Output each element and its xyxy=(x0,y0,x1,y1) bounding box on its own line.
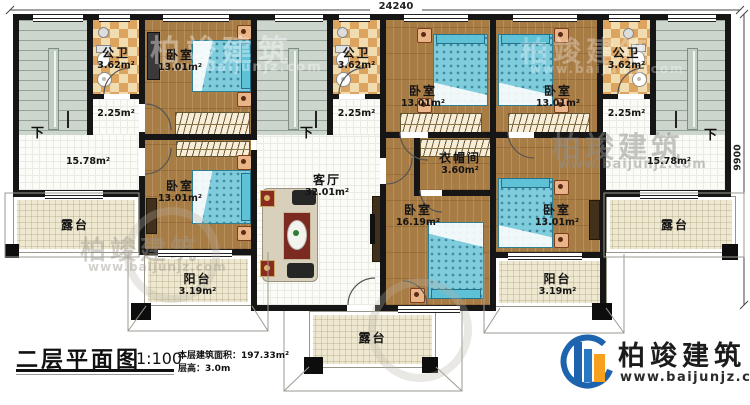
stair-direction-arrow xyxy=(675,111,677,128)
room-area: 3.19m² xyxy=(165,286,230,297)
nightstand xyxy=(237,92,252,107)
door-opening xyxy=(420,190,442,196)
side-table xyxy=(260,260,275,277)
room-area: 32.01m² xyxy=(294,187,360,198)
pillar xyxy=(131,303,151,320)
pillar xyxy=(5,244,19,258)
dimension-top: 24240 xyxy=(370,1,422,12)
room-name: 公卫 xyxy=(602,46,651,60)
room-label-hall-right: 2.25m² xyxy=(602,108,651,119)
shower-icon xyxy=(337,27,348,38)
stair-rail xyxy=(288,48,299,130)
wall xyxy=(139,134,257,140)
room-area: 13.01m² xyxy=(150,62,210,73)
plant xyxy=(293,230,299,236)
nightstand xyxy=(237,25,252,40)
room-label-bath-right: 公卫 3.62m² xyxy=(602,46,651,72)
room-name: 卧室 xyxy=(150,179,210,193)
door-opening xyxy=(618,94,644,99)
nightstand xyxy=(554,233,569,248)
room-name: 卧室 xyxy=(527,203,587,217)
room-name: 露台 xyxy=(340,331,405,345)
brand-logo-text: 柏竣建筑 xyxy=(618,334,746,373)
title-underline-thin xyxy=(16,374,174,375)
room-name: 公卫 xyxy=(92,46,140,60)
room-label-bed-mid-left: 卧室 13.01m² xyxy=(150,179,210,205)
door-opening xyxy=(400,132,428,138)
room-area: 16.19m² xyxy=(388,217,448,228)
tv xyxy=(370,214,375,244)
room-area: 13.01m² xyxy=(527,98,589,109)
room-area: 13.01m² xyxy=(392,98,454,109)
wardrobe xyxy=(508,113,590,134)
room-area: 15.78m² xyxy=(48,156,128,167)
room-name: 卧室 xyxy=(527,84,589,98)
sink xyxy=(632,72,647,87)
room-name: 衣帽间 xyxy=(428,151,492,165)
room-label-bed-mid-right: 卧室 13.01m² xyxy=(527,203,587,229)
wardrobe xyxy=(400,113,482,134)
room-name: 露台 xyxy=(40,218,110,232)
room-area: 3.62m² xyxy=(332,60,381,71)
stair-down-label: 下 xyxy=(704,124,717,143)
wall xyxy=(380,20,386,140)
nightstand xyxy=(237,226,252,241)
shower-icon xyxy=(623,28,634,39)
stair-rail xyxy=(48,48,59,130)
room-name: 露台 xyxy=(645,218,705,232)
stair-down-label: 下 xyxy=(31,122,44,141)
sink xyxy=(97,72,112,87)
window xyxy=(339,14,370,22)
tv-cabinet xyxy=(589,200,600,240)
room-label-terrace-bottom: 露台 xyxy=(340,331,405,345)
dimension-right: 9900 xyxy=(733,138,744,178)
room-label-balcony-right: 阳台 3.19m² xyxy=(525,272,590,298)
room-label-cloakroom: 衣帽间 3.60m² xyxy=(428,151,492,177)
room-label-hall-mid: 2.25m² xyxy=(332,108,381,119)
room-label-living: 客厅 32.01m² xyxy=(294,173,360,199)
door-opening xyxy=(347,305,375,311)
room-label-balcony-left: 阳台 3.19m² xyxy=(165,272,230,298)
room-name: 卧室 xyxy=(150,48,210,62)
door-opening xyxy=(139,148,145,176)
room-label-terrace-right: 露台 xyxy=(645,218,705,232)
pillar xyxy=(592,303,612,320)
window xyxy=(640,190,698,199)
window xyxy=(163,14,229,22)
room-area: 3.60m² xyxy=(428,165,492,176)
nightstand xyxy=(554,180,569,195)
window xyxy=(275,14,323,22)
wardrobe xyxy=(175,112,250,135)
room-label-open-left: 15.78m² xyxy=(48,156,128,167)
room-area: 2.25m² xyxy=(602,108,651,119)
room-label-terrace-left: 露台 xyxy=(40,218,110,232)
floor-area-label: 本层建筑面积：197.33m² xyxy=(178,348,289,361)
wall xyxy=(380,132,496,138)
sliding-door xyxy=(508,252,582,260)
wall xyxy=(600,132,606,308)
door-opening xyxy=(508,132,534,138)
room-area: 2.25m² xyxy=(92,108,140,119)
window xyxy=(45,190,103,199)
floor-height-label: 层高：3.0m xyxy=(178,361,230,374)
room-label-open-right: 15.78m² xyxy=(633,156,705,167)
room-label-bath-mid: 公卫 3.62m² xyxy=(332,46,381,72)
wall xyxy=(13,14,19,196)
room-label-bed-top-mid-left: 卧室 13.01m² xyxy=(392,84,454,110)
nightstand xyxy=(417,28,432,43)
pillar xyxy=(722,244,738,260)
room-label-bed-top-mid-right: 卧室 13.01m² xyxy=(527,84,589,110)
nightstand xyxy=(554,28,569,43)
bed xyxy=(428,222,484,299)
window xyxy=(99,14,130,22)
window xyxy=(668,14,716,22)
room-label-bed-top-left: 卧室 13.01m² xyxy=(150,48,210,74)
room-area: 13.01m² xyxy=(150,193,210,204)
side-table xyxy=(260,190,275,207)
nightstand xyxy=(410,288,425,303)
room-name: 客厅 xyxy=(294,173,360,187)
brand-logo-icon xyxy=(558,330,616,402)
door-opening xyxy=(104,94,130,99)
window xyxy=(33,14,83,22)
floor-plan-sheet: 24240 9900 公卫 3.62m² 2.25m² 卧室 13.01m² 1… xyxy=(0,0,750,405)
title-underline xyxy=(16,369,174,372)
room-name: 阳台 xyxy=(525,272,590,286)
scale-label: 1:100 xyxy=(136,349,182,368)
armchair xyxy=(287,263,314,278)
room-area: 2.25m² xyxy=(332,108,381,119)
room-name: 卧室 xyxy=(392,84,454,98)
wall xyxy=(414,138,420,190)
room-name: 卧室 xyxy=(388,203,448,217)
window xyxy=(398,305,460,313)
window xyxy=(609,14,640,22)
wall xyxy=(725,14,731,196)
sink xyxy=(336,72,351,87)
pillar xyxy=(422,357,438,373)
room-area: 15.78m² xyxy=(633,156,705,167)
room-area: 3.62m² xyxy=(92,60,140,71)
room-label-hall-left: 2.25m² xyxy=(92,108,140,119)
door-opening xyxy=(380,158,386,184)
door-opening xyxy=(339,94,365,99)
room-area: 3.19m² xyxy=(525,286,590,297)
room-label-bath-left: 公卫 3.62m² xyxy=(92,46,140,72)
pillar xyxy=(304,357,323,374)
stair-rail xyxy=(687,48,698,130)
nightstand xyxy=(237,155,252,170)
stair-direction-arrow xyxy=(315,111,317,128)
room-name: 公卫 xyxy=(332,46,381,60)
shower-icon xyxy=(98,27,109,38)
stair-down-label: 下 xyxy=(300,122,313,141)
wall xyxy=(490,20,496,132)
window xyxy=(513,14,577,22)
sliding-door xyxy=(158,249,232,257)
room-area: 13.01m² xyxy=(527,217,587,228)
room-name: 阳台 xyxy=(165,272,230,286)
wall xyxy=(251,150,257,311)
wall xyxy=(251,20,257,135)
brand-logo-url: www.baijunjz.com xyxy=(620,370,750,385)
room-label-bed-center: 卧室 16.19m² xyxy=(388,203,448,229)
window xyxy=(404,14,468,22)
stair-direction-arrow xyxy=(67,111,69,128)
room-area: 3.62m² xyxy=(602,60,651,71)
